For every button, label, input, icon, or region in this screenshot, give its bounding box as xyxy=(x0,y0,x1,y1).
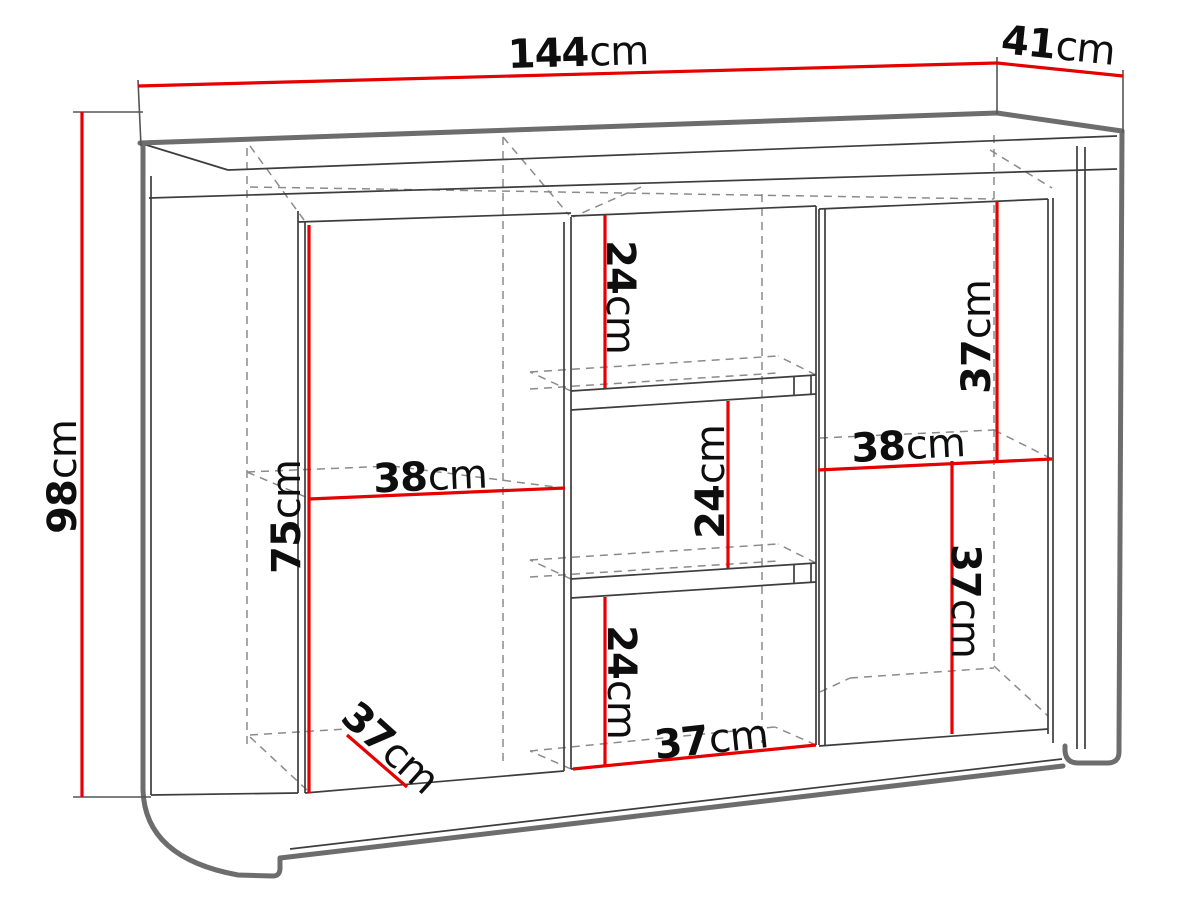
dim-label-center-top-height: 24cm xyxy=(600,240,640,354)
dim-value: 37 xyxy=(942,544,988,598)
dim-unit: cm xyxy=(598,680,644,739)
dim-value: 37 xyxy=(954,340,1000,394)
dim-value: 98 xyxy=(40,480,86,534)
dim-unit: cm xyxy=(942,599,988,658)
dim-unit: cm xyxy=(597,295,643,354)
dim-unit: cm xyxy=(905,420,966,469)
dim-label-center-width: 37cm xyxy=(652,714,769,766)
dim-value: 144 xyxy=(507,30,589,78)
dim-unit: cm xyxy=(688,425,734,484)
dim-label-center-niche-height: 24cm xyxy=(691,425,731,539)
dim-label-center-bottom-height: 24cm xyxy=(601,625,641,739)
dim-unit: cm xyxy=(589,28,649,76)
dim-unit: cm xyxy=(40,420,86,479)
dim-value: 38 xyxy=(372,454,428,502)
dim-value: 41 xyxy=(999,17,1057,68)
dim-label-overall-depth: 41cm xyxy=(999,20,1116,72)
dim-value: 75 xyxy=(264,520,310,574)
cabinet-drawing xyxy=(0,0,1200,900)
dim-label-right-top-height: 37cm xyxy=(957,280,997,394)
dim-unit: cm xyxy=(1053,23,1116,75)
dim-value: 24 xyxy=(598,625,644,679)
dim-label-overall-width: 144cm xyxy=(507,31,649,75)
dim-unit: cm xyxy=(706,711,769,763)
dim-unit: cm xyxy=(427,452,488,501)
dim-value: 24 xyxy=(597,240,643,294)
dim-label-overall-height: 98cm xyxy=(43,420,83,534)
dim-unit: cm xyxy=(264,460,310,519)
dim-label-right-width: 38cm xyxy=(850,423,966,469)
dim-value: 37 xyxy=(652,717,710,768)
dim-value: 38 xyxy=(850,423,906,472)
dim-label-left-door-height: 75cm xyxy=(267,460,307,574)
dim-label-right-bottom-height: 37cm xyxy=(945,544,985,658)
diagram-stage: 144cm 41cm 98cm 75cm 38cm 37cm 24cm 24cm… xyxy=(0,0,1200,900)
dim-unit: cm xyxy=(954,280,1000,339)
dim-label-left-width: 38cm xyxy=(372,455,487,500)
dim-value: 24 xyxy=(688,485,734,539)
